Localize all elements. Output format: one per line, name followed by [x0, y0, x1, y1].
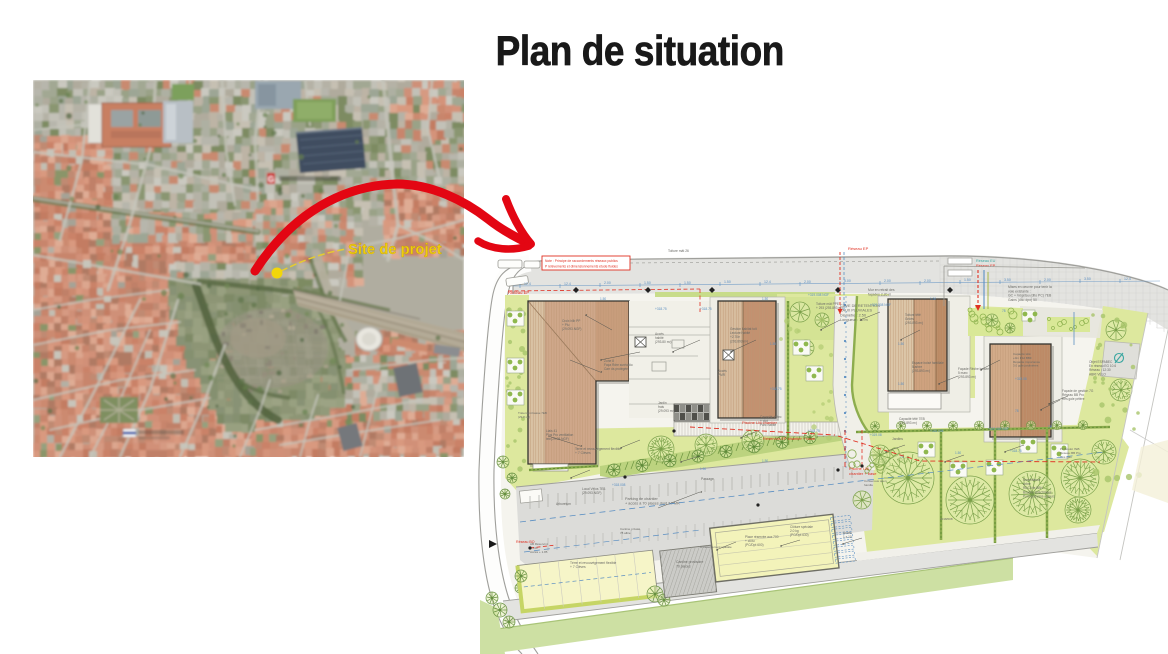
- svg-text:1.50: 1.50: [770, 342, 776, 346]
- svg-text:70 places: 70 places: [676, 564, 691, 568]
- svg-text:Toiture mât 26: Toiture mât 26: [668, 249, 689, 253]
- svg-text:Réseau EP: Réseau EP: [848, 246, 869, 251]
- svg-text:+319.008 NGF: +319.008 NGF: [988, 427, 1009, 431]
- svg-text:1.50: 1.50: [898, 342, 904, 346]
- svg-text:1.50: 1.50: [762, 297, 768, 301]
- svg-text:(293.893 m²): (293.893 m²): [912, 369, 930, 373]
- svg-text:(29.093.NGF): (29.093.NGF): [582, 491, 602, 495]
- svg-text:1.50: 1.50: [955, 451, 961, 455]
- svg-text:+319.08: +319.08: [1015, 377, 1027, 381]
- svg-text:Carr ds protégée: Carr ds protégée: [604, 367, 628, 371]
- svg-text:chantier + base: chantier + base: [849, 471, 877, 476]
- svg-text:Pont gole-pins-acteurs: Pont gole-pins-acteurs: [1023, 494, 1055, 498]
- svg-text:Piscine LM chantier: Piscine LM chantier: [742, 420, 778, 425]
- svg-text:+319.008 NGF: +319.008 NGF: [808, 293, 829, 297]
- svg-text:handle: handle: [864, 483, 873, 487]
- svg-text:+318.75: +318.75: [655, 307, 667, 311]
- svg-text:(PC/Dpt 600): (PC/Dpt 600): [745, 543, 764, 547]
- svg-text:Note : Principe de raccordemen: Note : Principe de raccordements réseaux…: [545, 259, 618, 263]
- svg-text:1 x 10: 1 x 10: [843, 535, 852, 539]
- svg-text:(293.893 m²): (293.893 m²): [899, 421, 917, 425]
- svg-text:1.50: 1.50: [964, 278, 971, 282]
- svg-text:(29.8 m²): (29.8 m²): [518, 415, 530, 419]
- svg-text:78: 78: [1015, 409, 1019, 413]
- svg-text:1.50: 1.50: [930, 297, 936, 301]
- svg-text:78 albie: 78 albie: [620, 531, 631, 535]
- svg-text:2.00: 2.00: [604, 281, 611, 285]
- svg-text:Réseau EU: Réseau EU: [976, 259, 996, 263]
- svg-text:(PC/Dpt 630): (PC/Dpt 630): [790, 533, 809, 537]
- svg-text:78: 78: [1002, 309, 1006, 313]
- svg-text:3.0 gole jardinières: 3.0 gole jardinières: [1013, 364, 1039, 368]
- svg-text:78: 78: [1048, 425, 1052, 429]
- svg-text:Gains (dito dpo) 50: Gains (dito dpo) 50: [1008, 298, 1037, 302]
- svg-text:1.50: 1.50: [700, 467, 706, 471]
- svg-text:EAUX PLUVIALES: EAUX PLUVIALES: [840, 309, 873, 313]
- svg-text:2.00: 2.00: [924, 279, 931, 283]
- svg-text:(29.093.NGF): (29.093.NGF): [562, 327, 582, 331]
- svg-text:+319.008 NGF: +319.008 NGF: [870, 303, 891, 307]
- svg-text:+318.75: +318.75: [808, 429, 820, 433]
- svg-text:2.00: 2.00: [804, 280, 811, 284]
- svg-text:(293.893 m²): (293.893 m²): [730, 339, 748, 343]
- svg-text:+318.75: +318.75: [700, 307, 712, 311]
- svg-text:2.00: 2.00: [884, 279, 891, 283]
- svg-text:1.50: 1.50: [684, 281, 691, 285]
- svg-text:Arboretum: Arboretum: [556, 502, 571, 506]
- svg-text:2.00: 2.00: [1044, 278, 1051, 282]
- svg-text:5.00: 5.00: [844, 279, 851, 283]
- svg-text:façades 2.20 m: façades 2.20 m: [868, 292, 891, 296]
- svg-text:+318.008: +318.008: [612, 483, 626, 487]
- svg-text:Réseau EP: Réseau EP: [976, 264, 996, 268]
- svg-text:+ 7 Clèves: + 7 Clèves: [575, 451, 591, 455]
- svg-text:1.50: 1.50: [762, 459, 768, 463]
- svg-text:3.50: 3.50: [1004, 278, 1011, 282]
- svg-text:G: G: [268, 175, 274, 184]
- svg-text:Réseau BO: Réseau BO: [516, 540, 535, 544]
- svg-text:P rélèvements et dimensionneme: P rélèvements et dimensionnements étude …: [545, 265, 618, 269]
- svg-text:12.4: 12.4: [564, 282, 571, 286]
- svg-text:(29.093 m²): (29.093 m²): [658, 409, 674, 413]
- svg-text:1.50: 1.50: [600, 297, 606, 301]
- svg-text:+319.08: +319.08: [870, 433, 882, 437]
- svg-text:Parking de chantier: Parking de chantier: [625, 497, 658, 501]
- svg-text:+318.75: +318.75: [770, 387, 782, 391]
- svg-text:Site de projet: Site de projet: [348, 242, 442, 258]
- svg-text:12.4: 12.4: [1124, 277, 1131, 281]
- svg-text:1.50: 1.50: [898, 382, 904, 386]
- svg-text:2018/008: 2018/008: [940, 517, 953, 521]
- svg-text:Réservoir EP chantier + base: Réservoir EP chantier + base: [763, 436, 816, 441]
- svg-text:1.50: 1.50: [724, 280, 731, 284]
- svg-text:+318.008: +318.008: [930, 429, 944, 433]
- svg-text:+ 7 Clèves: + 7 Clèves: [570, 565, 586, 569]
- svg-text:(293.80 m²): (293.80 m²): [655, 340, 671, 344]
- svg-text:3.50: 3.50: [1084, 277, 1091, 281]
- svg-text:ABRI VÉLO: ABRI VÉLO: [1089, 371, 1106, 376]
- svg-text:(293.893 m²): (293.893 m²): [905, 321, 923, 325]
- svg-text:Passage: Passage: [701, 477, 714, 481]
- svg-text:(293.893 m²): (293.893 m²): [958, 375, 976, 379]
- svg-text:+318.75: +318.75: [1010, 449, 1022, 453]
- svg-text:Diamètre : 2.50: Diamètre : 2.50: [840, 313, 866, 317]
- svg-text:1.50: 1.50: [644, 281, 651, 285]
- svg-text:Rés gole pétère: Rés gole pétère: [1062, 397, 1085, 401]
- svg-text:Jardins: Jardins: [892, 437, 903, 441]
- svg-text:PMR: PMR: [718, 373, 726, 377]
- svg-text:12.4: 12.4: [764, 280, 771, 284]
- svg-text:12.4: 12.4: [524, 282, 531, 286]
